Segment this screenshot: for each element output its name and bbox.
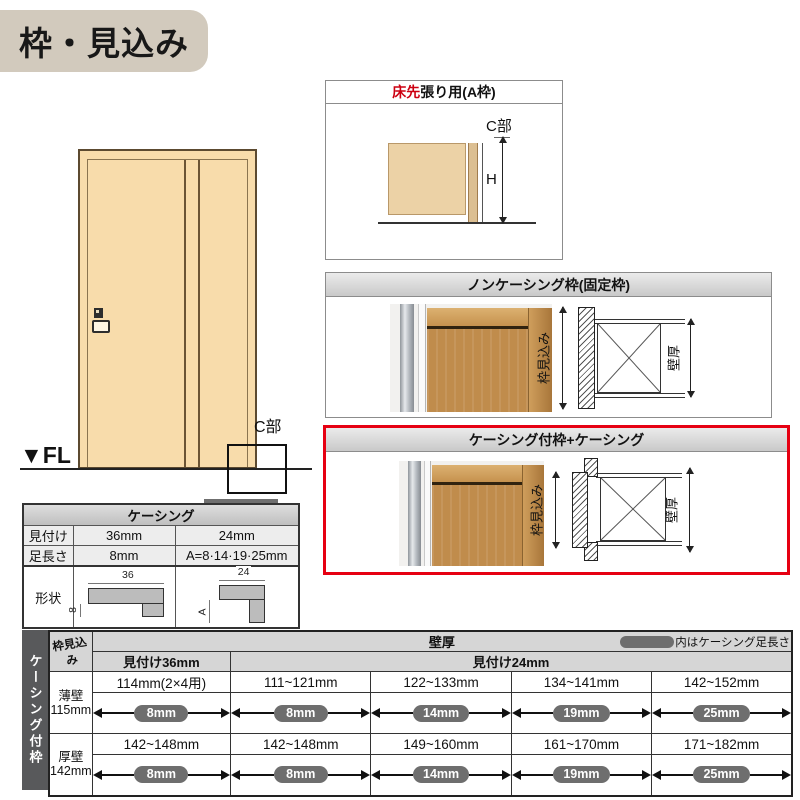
- depth-dimension-label: 枠見込み: [527, 484, 546, 536]
- matrix-corner-header: 枠見込み: [49, 631, 92, 672]
- wall-line: [595, 397, 685, 398]
- leg-arrow-cell: 14mm: [371, 693, 511, 734]
- dimension-arrow: 14mm: [371, 705, 510, 722]
- wall-dimension-label: 壁厚: [664, 345, 683, 371]
- a-frame-floor-line: [378, 222, 536, 224]
- matrix-group24-header: 見付け24mm: [231, 652, 792, 672]
- matrix-group36-header: 見付け36mm: [92, 652, 230, 672]
- noncasing-title: ノンケーシング枠(固定枠): [467, 275, 630, 295]
- catalog-page: 枠・見込み ▼FL C部 床先張り用(A枠) C部 H ノンケーシング枠(固定枠…: [0, 0, 800, 800]
- depth-dimension-line: [555, 472, 556, 548]
- shape-36-width: 36: [120, 569, 136, 581]
- a-frame-door-section: [388, 143, 466, 215]
- range-cell: 134~141mm: [511, 672, 651, 693]
- shape-36-cell: 36 8: [73, 566, 175, 628]
- photo-rail: [408, 461, 421, 566]
- wall-line: [595, 319, 685, 320]
- casing-title: ケーシング付枠+ケーシング: [469, 430, 645, 450]
- range-cell: 111~121mm: [231, 672, 371, 693]
- matrix-table: 枠見込み 壁厚 内はケーシング足長さ 見付け36mm 見付け24mm 薄壁115…: [48, 630, 793, 797]
- frame-section-hatch: [572, 472, 588, 548]
- wall-dimension-line: [689, 468, 690, 552]
- shape-36-leg: 8: [67, 607, 79, 613]
- casing-profile-24: 24 A: [195, 569, 279, 625]
- leg-arrow-cell: 14mm: [371, 755, 511, 796]
- wall-line: [596, 541, 682, 542]
- page-title: 枠・見込み: [0, 10, 208, 72]
- casing-box-header: ケーシング付枠+ケーシング: [326, 428, 787, 452]
- leg-pill: 25mm: [693, 705, 749, 722]
- casing-profile-36: 36 8: [76, 572, 172, 622]
- dimension-arrow: 25mm: [652, 766, 791, 783]
- leg-arrow-cell: 19mm: [511, 693, 651, 734]
- spec-value: A=8·14·19·25mm: [175, 546, 299, 567]
- photo-rail: [400, 304, 415, 412]
- casing-box: ケーシング付枠+ケーシング 枠見込み 壁厚: [323, 425, 790, 575]
- dimension-arrow: 8mm: [231, 766, 370, 783]
- spec-table-title: ケーシング: [23, 504, 299, 526]
- leg-pill: 8mm: [134, 705, 188, 722]
- legend-text: 内はケーシング足長さ: [675, 634, 790, 650]
- wall-line: [596, 473, 682, 474]
- photo-door-panel: [432, 485, 522, 566]
- leg-pill: 8mm: [274, 705, 328, 722]
- dim-line: [209, 600, 210, 623]
- spec-row-label: 足長さ: [23, 546, 73, 567]
- leg-pill: 8mm: [274, 766, 328, 783]
- door-latch: [94, 308, 103, 318]
- matrix-side-strip: ケーシング付枠: [22, 630, 48, 790]
- leg-arrow-cell: 8mm: [92, 755, 230, 796]
- depth-dimension-label: 枠見込み: [534, 332, 553, 384]
- range-cell: 142~152mm: [652, 672, 792, 693]
- floor-level-label: ▼FL: [20, 442, 71, 469]
- dim-line: [219, 580, 265, 581]
- wall-cross-section: [600, 477, 666, 541]
- dimension-arrow: 19mm: [512, 705, 651, 722]
- legend-pill: [620, 636, 674, 648]
- leg-pill: 14mm: [413, 705, 469, 722]
- profile-leg: [142, 603, 164, 617]
- leg-pill: 19mm: [553, 766, 609, 783]
- photo-rail-trim: [424, 461, 431, 566]
- leg-arrow-cell: 25mm: [652, 755, 792, 796]
- frame-a-title-rest: 張り用(A枠): [420, 82, 495, 102]
- leg-pill: 8mm: [134, 766, 188, 783]
- shape-24-cell: 24 A: [175, 566, 299, 628]
- wall-line: [596, 545, 682, 546]
- page-title-text: 枠・見込み: [19, 17, 189, 65]
- spec-row-label: 形状: [23, 566, 73, 628]
- dimension-arrow: 8mm: [231, 705, 370, 722]
- range-cell: 161~170mm: [511, 734, 651, 755]
- range-cell: 149~160mm: [371, 734, 511, 755]
- door-stile-line: [198, 160, 200, 467]
- range-cell: 142~148mm: [231, 734, 371, 755]
- dim-line: [80, 604, 81, 617]
- door-frame-line: [247, 159, 248, 467]
- leg-arrow-cell: 19mm: [511, 755, 651, 796]
- noncasing-box: ノンケーシング枠(固定枠) 枠見込み 壁厚: [325, 272, 772, 418]
- range-cell: 171~182mm: [652, 734, 792, 755]
- wall-dimension-line: [690, 319, 691, 397]
- dimension-arrow: 14mm: [371, 766, 510, 783]
- a-frame-c-part-label: C部: [486, 115, 512, 136]
- matrix-wall-header: 壁厚 内はケーシング足長さ: [92, 631, 792, 652]
- spec-value: 36mm: [73, 526, 175, 546]
- range-cell: 142~148mm: [92, 734, 230, 755]
- profile-bar: [219, 585, 265, 600]
- a-frame-jamb-section: [468, 143, 478, 223]
- dimension-arrow: 19mm: [512, 766, 651, 783]
- wall-dimension-label: 壁厚: [662, 497, 681, 523]
- frame-a-box: 床先張り用(A枠) C部 H: [325, 80, 563, 260]
- wall-line: [595, 393, 685, 394]
- wall-type-thick: 厚壁142mm: [49, 734, 92, 796]
- noncasing-photo: [390, 304, 552, 412]
- spec-row-label: 見付け: [23, 526, 73, 546]
- a-frame-height-label: H: [484, 171, 499, 188]
- leg-arrow-cell: 25mm: [652, 693, 792, 734]
- frame-a-box-header: 床先張り用(A枠): [326, 81, 562, 104]
- matrix-legend: 内はケーシング足長さ: [620, 634, 790, 650]
- leg-arrow-cell: 8mm: [92, 693, 230, 734]
- photo-rail-trim: [418, 304, 426, 412]
- height-dimension-line: [502, 137, 503, 223]
- profile-bar: [88, 588, 164, 604]
- noncasing-box-header: ノンケーシング枠(固定枠): [326, 273, 771, 297]
- door-elevation: [78, 149, 257, 469]
- shape-24-leg: A: [196, 608, 208, 615]
- door-stile-line: [184, 160, 186, 467]
- c-part-callout-rect: [227, 444, 287, 494]
- dimension-arrow: 25mm: [652, 705, 791, 722]
- casing-photo: [399, 461, 544, 566]
- dim-line: [88, 583, 164, 584]
- c-part-label: C部: [254, 413, 282, 437]
- casing-matrix: ケーシング付枠 枠見込み 壁厚 内はケーシング足長さ 見付け36mm 見付け24…: [22, 630, 793, 790]
- depth-dimension-line: [562, 307, 563, 409]
- leg-pill: 14mm: [413, 766, 469, 783]
- spec-value: 8mm: [73, 546, 175, 567]
- range-cell: 114mm(2×4用): [92, 672, 230, 693]
- range-cell: 122~133mm: [371, 672, 511, 693]
- dimension-arrow: 8mm: [93, 705, 230, 722]
- leg-arrow-cell: 8mm: [231, 693, 371, 734]
- leg-pill: 25mm: [693, 766, 749, 783]
- door-pull-handle: [92, 320, 110, 333]
- wall-header-text: 壁厚: [429, 635, 455, 650]
- leg-arrow-cell: 8mm: [231, 755, 371, 796]
- spec-value: 24mm: [175, 526, 299, 546]
- wall-type-thin: 薄壁115mm: [49, 672, 92, 734]
- wall-cross-section: [597, 323, 661, 393]
- profile-leg: [249, 599, 265, 623]
- dimension-arrow: 8mm: [93, 766, 230, 783]
- frame-section-hatch: [578, 307, 595, 409]
- frame-a-title-highlight: 床先: [392, 82, 420, 102]
- matrix-side-label: ケーシング付枠: [26, 654, 45, 766]
- casing-spec-table: ケーシング 見付け 36mm 24mm 足長さ 8mm A=8·14·19·25…: [22, 503, 300, 629]
- a-frame-edge-line: [482, 143, 483, 223]
- photo-door-panel: [427, 329, 527, 412]
- door-frame-line: [87, 159, 248, 160]
- leg-pill: 19mm: [553, 705, 609, 722]
- door-frame-line: [87, 159, 88, 467]
- shape-24-width: 24: [236, 566, 252, 578]
